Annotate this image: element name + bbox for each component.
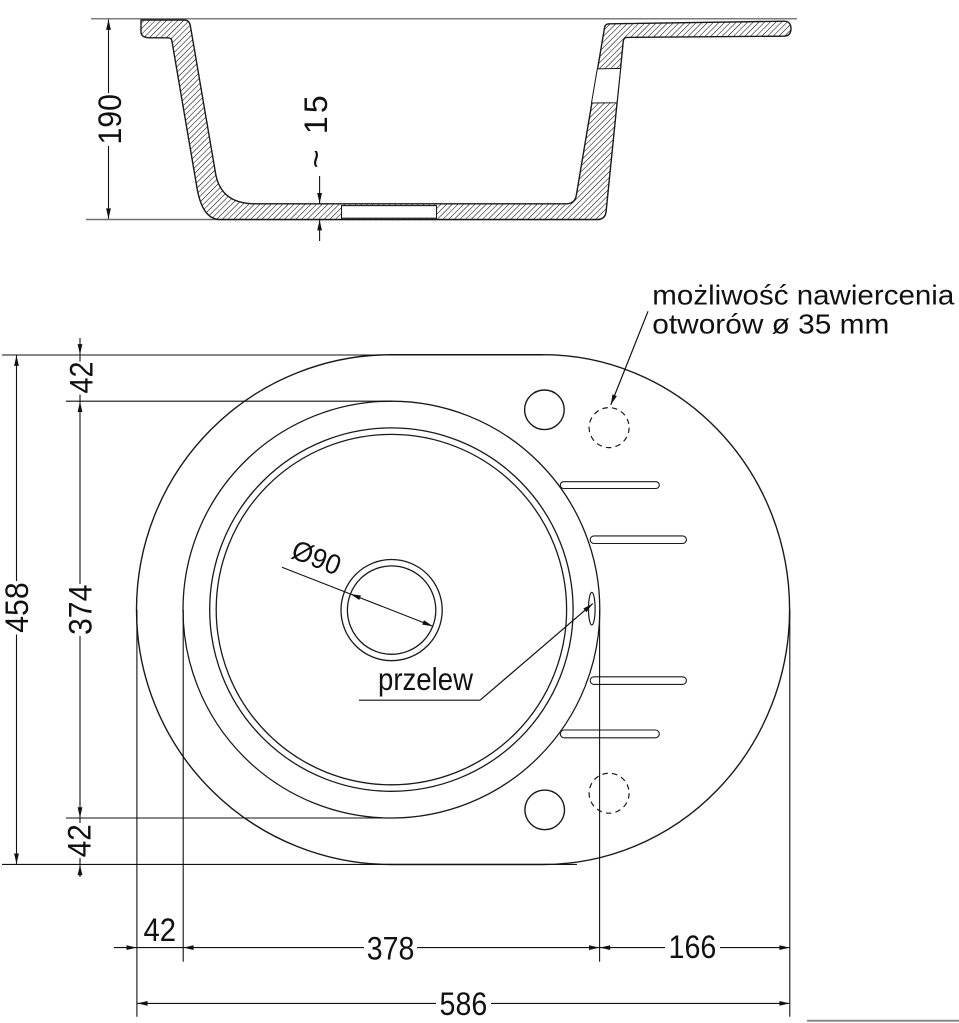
svg-text:374: 374 — [63, 585, 99, 636]
svg-text:378: 378 — [367, 930, 415, 966]
svg-text:190: 190 — [92, 94, 128, 145]
svg-text:~ 15: ~ 15 — [298, 95, 334, 168]
svg-text:przelew: przelew — [378, 661, 473, 697]
svg-text:586: 586 — [440, 986, 488, 1022]
svg-text:możliwość nawiercenia: możliwość nawiercenia — [652, 280, 955, 311]
svg-text:otworów ø 35 mm: otworów ø 35 mm — [652, 309, 889, 340]
svg-text:166: 166 — [669, 929, 717, 965]
svg-text:42: 42 — [143, 912, 176, 948]
svg-text:458: 458 — [0, 582, 35, 633]
svg-text:42: 42 — [64, 362, 100, 394]
svg-text:42: 42 — [62, 824, 98, 857]
